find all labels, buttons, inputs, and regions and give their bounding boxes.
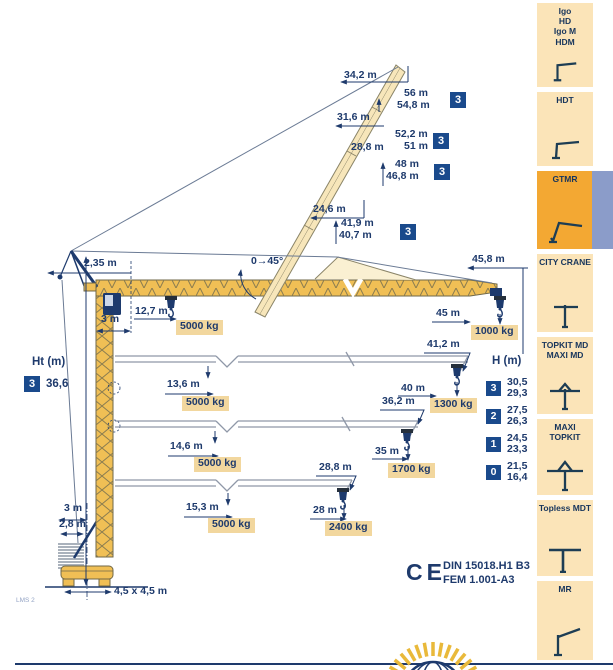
hook-jib-tip (494, 296, 506, 317)
sidebar-item-label: MR (558, 584, 571, 594)
table-values: 24,5 23,3 (507, 433, 527, 454)
max-load-radius: 13,6 m (167, 379, 200, 390)
raised-radius-label: 24,6 m (313, 204, 346, 215)
hook-height-header: H (m) (492, 355, 521, 367)
max-load-radius: 12,7 m (135, 306, 168, 317)
sidebar-item-label: GTMR (552, 174, 577, 184)
hook-offset-label: 3 m (101, 314, 119, 325)
table-values: 30,5 29,3 (507, 377, 527, 398)
raised-tip-height: 41,9 m (341, 218, 374, 229)
config-badge: 3 (434, 164, 450, 180)
base-dim-label: 3 m (64, 503, 82, 514)
jib-tie-frame (315, 257, 416, 280)
table-badge: 1 (486, 437, 501, 452)
gtmr-crane-icon (544, 214, 586, 246)
table-badge: 3 (486, 381, 501, 396)
max-load-box: 5000 kg (182, 396, 229, 411)
raised-radius-label: 28,8 m (351, 142, 384, 153)
mr-crane-icon (544, 625, 586, 657)
config-badge: 3 (24, 376, 40, 392)
table-values: 27,5 26,3 (507, 405, 527, 426)
raised-radius-label: 34,2 m (344, 70, 377, 81)
sidebar-item-label: Topless MDT (539, 503, 591, 513)
tip-radius-label: 28 m (313, 505, 337, 516)
base-dim-label: 2,8 m (59, 519, 86, 530)
config-badge: 3 (400, 224, 416, 240)
operator-cab (103, 293, 121, 315)
table-values: 21,5 16,4 (507, 461, 527, 482)
hook-28m-jib (337, 488, 349, 509)
horizontal-jib (96, 279, 497, 296)
config-badge: 3 (433, 133, 449, 149)
hook-36m-jib (401, 429, 413, 450)
sidebar-item-label: MAXI TOPKIT (538, 422, 592, 442)
sidebar-item-topless-mdt[interactable]: Topless MDT (537, 500, 593, 576)
jib-length-label: 45,8 m (472, 254, 505, 265)
standard-din: DIN 15018.H1 B3 (443, 560, 530, 573)
sidebar-item-mr[interactable]: MR (537, 581, 593, 660)
raised-radius-label: 31,6 m (337, 112, 370, 123)
tower-height-value: 36,6 (46, 378, 68, 390)
tip-load-box: 1700 kg (388, 463, 435, 478)
ce-mark: CE (406, 561, 446, 584)
standard-fem: FEM 1.001-A3 (443, 574, 515, 587)
city-crane-icon (544, 297, 586, 329)
tip-load-box: 1000 kg (471, 325, 518, 340)
tip-load-box: 1300 kg (430, 398, 477, 413)
topless-mdt-crane-icon (544, 541, 586, 573)
raised-hook-height: 54,8 m (397, 100, 430, 111)
dimension-lines (48, 66, 528, 592)
sidebar-item-label: HDT (556, 95, 573, 105)
tip-radius-label: 35 m (375, 446, 399, 457)
raised-tip-height: 56 m (404, 88, 428, 99)
sidebar-item-igo[interactable]: Igo HD Igo M HDM (537, 3, 593, 87)
globe-logo (384, 642, 482, 670)
max-load-radius: 14,6 m (170, 441, 203, 452)
hdt-crane-icon (544, 131, 586, 163)
max-load-radius: 15,3 m (186, 502, 219, 513)
sidebar-item-label: CITY CRANE (539, 257, 591, 267)
jib-length-label: 36,2 m (382, 396, 415, 407)
sidebar-item-topkit-md[interactable]: TOPKIT MD MAXI MD (537, 337, 593, 414)
raised-hook-height: 51 m (404, 141, 428, 152)
raised-hook-height: 40,7 m (339, 230, 372, 241)
hook-41m-jib (451, 364, 463, 385)
sidebar-item-hdt[interactable]: HDT (537, 92, 593, 166)
table-badge: 2 (486, 409, 501, 424)
raised-tip-height: 52,2 m (395, 129, 428, 140)
raised-hook-height: 46,8 m (386, 171, 419, 182)
lms-footnote: LMS 2 (16, 598, 35, 605)
max-load-box: 5000 kg (176, 320, 223, 335)
maxi-topkit-crane-icon (544, 460, 586, 492)
tower-height-header: Ht (m) (32, 356, 65, 368)
max-load-box: 5000 kg (194, 457, 241, 472)
tip-radius-label: 40 m (401, 383, 425, 394)
sidebar-item-gtmr[interactable]: GTMR (537, 171, 593, 249)
topkit-md-crane-icon (544, 379, 586, 411)
sidebar-item-label: Igo HD Igo M HDM (554, 6, 576, 47)
jib-length-label: 28,8 m (319, 462, 352, 473)
max-load-box: 5000 kg (208, 518, 255, 533)
sidebar-item-label: TOPKIT MD MAXI MD (542, 340, 589, 360)
sidebar-item-city-crane[interactable]: CITY CRANE (537, 254, 593, 332)
table-badge: 0 (486, 465, 501, 480)
igo-crane-icon (544, 54, 586, 84)
tower-head-offset: 2,35 m (84, 258, 117, 269)
config-badge: 3 (450, 92, 466, 108)
tip-load-box: 2400 kg (325, 521, 372, 536)
footprint-label: 4,5 x 4,5 m (114, 586, 167, 597)
tip-radius-label: 45 m (436, 308, 460, 319)
slew-range-label: 0→45° (251, 256, 283, 267)
jib-length-label: 41,2 m (427, 339, 460, 350)
selected-item-tab[interactable] (592, 171, 613, 249)
sidebar-item-maxi-topkit[interactable]: MAXI TOPKIT (537, 419, 593, 495)
crane-spec-page: 34,2 m 56 m 54,8 m 3 31,6 m 52,2 m 51 m … (0, 0, 613, 670)
raised-tip-height: 48 m (395, 159, 419, 170)
